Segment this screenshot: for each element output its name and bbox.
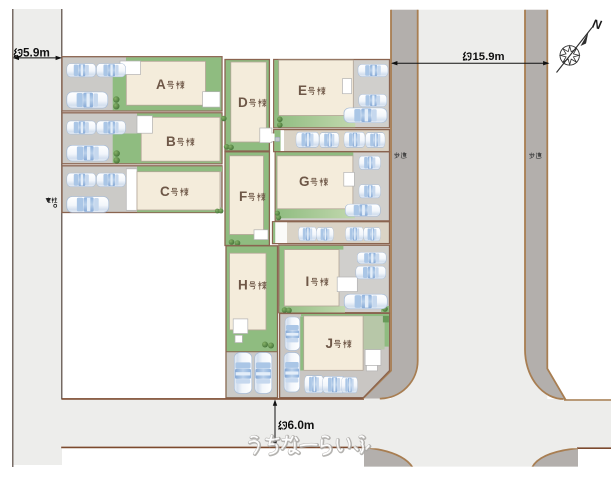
- svg-text:I: I: [306, 274, 310, 289]
- svg-text:6.0m: 6.0m: [288, 418, 315, 432]
- svg-text:B: B: [166, 134, 176, 149]
- svg-text:E: E: [298, 83, 307, 98]
- svg-text:15.9m: 15.9m: [473, 51, 505, 63]
- svg-text:J: J: [326, 336, 334, 351]
- svg-text:G: G: [299, 174, 310, 189]
- svg-text:F: F: [239, 189, 247, 204]
- svg-text:H: H: [238, 278, 248, 293]
- svg-text:C: C: [160, 184, 170, 199]
- svg-text:D: D: [238, 95, 248, 110]
- svg-text:A: A: [156, 77, 166, 92]
